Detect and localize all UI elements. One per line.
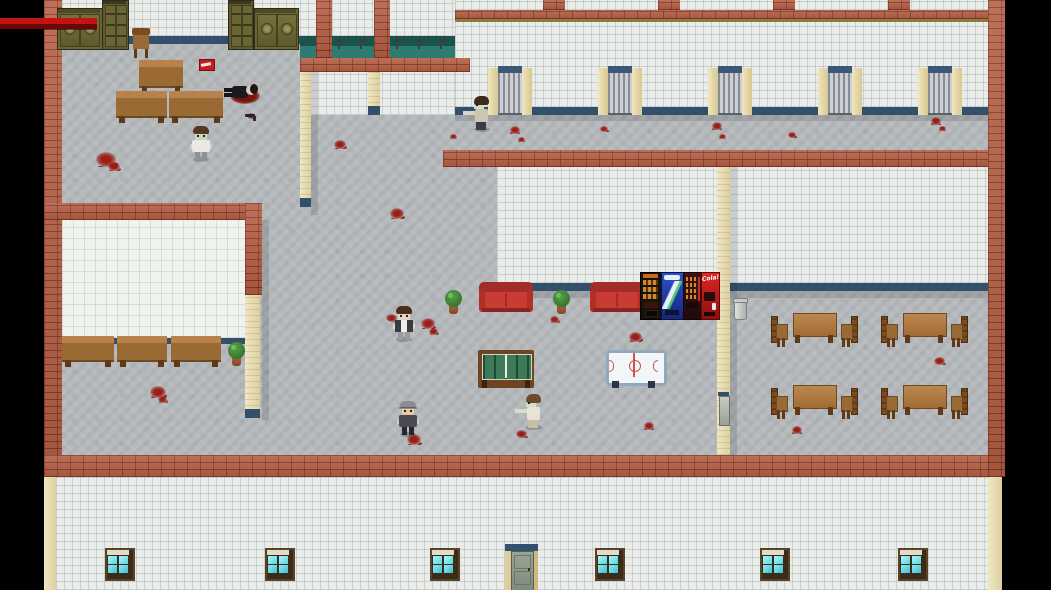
- sink-faucet: [396, 38, 403, 49]
- vending-machine-coffee: [640, 272, 663, 320]
- exterior-window: [430, 548, 460, 581]
- blood-splat: [644, 422, 654, 430]
- survivor-capped: [398, 401, 418, 437]
- dining-chair: [840, 388, 856, 419]
- blood-splat: [550, 316, 559, 323]
- bookshelf-left: [102, 0, 129, 50]
- blood-splat: [518, 137, 525, 142]
- blood-splat: [516, 430, 527, 438]
- south-wall-cream-left: [44, 477, 56, 590]
- lounge-wall-tile: [497, 167, 988, 283]
- blood-splat: [788, 132, 796, 138]
- dropped-red-item: [199, 59, 215, 71]
- dining-chair: [950, 316, 966, 347]
- dining-chair: [771, 316, 787, 347]
- vending-machine-soda: [661, 272, 685, 320]
- blood-splat: [629, 332, 642, 342]
- crenellation: [773, 0, 795, 10]
- waiting-bench-3: [171, 336, 221, 367]
- red-couch-left: [479, 282, 533, 315]
- barred-gate: [918, 66, 962, 115]
- blood-splat: [712, 122, 722, 130]
- waiting-room-floor: [62, 220, 245, 338]
- barred-gate: [708, 66, 752, 115]
- south-wall-cream-right: [988, 477, 1002, 590]
- blood-splat: [931, 117, 941, 125]
- wall-left: [44, 0, 62, 477]
- exterior-window: [760, 548, 790, 581]
- dining-chair: [881, 388, 897, 419]
- divider-shadow: [311, 72, 318, 215]
- blood-splat: [939, 126, 946, 131]
- blood-splat: [158, 396, 167, 403]
- foosball-table: [478, 350, 534, 388]
- dining-table: [903, 313, 945, 343]
- air-hockey-table: [606, 350, 661, 388]
- vending-machine-snack: [683, 272, 703, 320]
- bookshelf-right: [228, 0, 254, 50]
- sink-faucet: [360, 38, 367, 49]
- blood-splat: [429, 328, 438, 335]
- zombie-hall: [191, 126, 211, 162]
- crenellation: [658, 0, 680, 10]
- lounge-baseboard: [497, 283, 988, 291]
- office-bench-right: [169, 91, 223, 123]
- restroom-band: [300, 58, 470, 72]
- cabinet-double-right: [254, 8, 299, 50]
- blood-splat: [934, 357, 945, 365]
- office-desk: [139, 60, 183, 94]
- sink-faucet: [418, 38, 425, 49]
- potted-plant: [228, 342, 245, 366]
- blood-splat: [719, 134, 726, 139]
- zombie-cafeteria: [524, 394, 544, 430]
- blood-splat: [450, 134, 457, 139]
- corridor-south-wall: [443, 150, 988, 167]
- zombie-lounge: [394, 306, 414, 342]
- blood-splat: [390, 208, 404, 219]
- office-south-wall: [44, 203, 262, 220]
- dropped-pistol: [245, 112, 259, 121]
- waiting-room-divider: [245, 295, 260, 418]
- sink-faucet: [440, 38, 447, 49]
- crenellation: [888, 0, 910, 10]
- vending-machine-cola: Cola!: [701, 272, 720, 320]
- red-couch-right: [590, 282, 644, 315]
- health-bar: [0, 18, 97, 30]
- divider-wall-long: [300, 72, 311, 207]
- restroom-pillar-1: [316, 0, 332, 58]
- wall-right: [988, 0, 1005, 477]
- office-chair: [130, 28, 152, 62]
- corridor-trim: [455, 19, 988, 22]
- dining-chair: [771, 388, 787, 419]
- waiting-bench-2: [117, 336, 167, 367]
- exterior-door: [505, 544, 538, 590]
- crenellation: [543, 0, 565, 10]
- cola-brand-label: Cola!: [702, 274, 720, 283]
- blood-splat: [792, 426, 802, 434]
- zombie-corridor: [472, 96, 492, 132]
- trash-can: [733, 296, 746, 319]
- sink-faucet: [338, 38, 345, 49]
- corridor-floor-shadow: [455, 115, 988, 121]
- restroom-floor: [310, 72, 455, 115]
- exterior-window: [898, 548, 928, 581]
- divider-doorway: [718, 392, 729, 424]
- exterior-window: [595, 548, 625, 581]
- corridor-north-brick: [455, 10, 988, 19]
- dining-table: [903, 385, 945, 415]
- blood-splat: [108, 162, 120, 171]
- waiting-room-shadow: [262, 220, 269, 420]
- dining-chair: [840, 316, 856, 347]
- dining-table: [793, 385, 835, 415]
- office-bench-left: [116, 91, 167, 123]
- exterior-window: [265, 548, 295, 581]
- restroom-pillar-2: [374, 0, 390, 58]
- potted-plant: [445, 290, 462, 314]
- barred-gate: [488, 66, 532, 115]
- exterior-window: [105, 548, 135, 581]
- blood-splat: [600, 126, 608, 132]
- blood-splat: [510, 126, 520, 134]
- barred-gate: [598, 66, 642, 115]
- dead-body: [224, 78, 262, 106]
- waiting-bench-1: [62, 336, 114, 367]
- wall-bottom: [44, 455, 988, 477]
- dining-table: [793, 313, 835, 343]
- potted-plant: [553, 290, 570, 314]
- barred-gate: [818, 66, 862, 115]
- dining-chair: [950, 388, 966, 419]
- divider-wall-short: [368, 72, 380, 115]
- blood-splat: [334, 140, 346, 149]
- dining-chair: [881, 316, 897, 347]
- game-viewport[interactable]: Cola!: [0, 0, 1051, 590]
- waiting-room-east-brick: [245, 203, 262, 295]
